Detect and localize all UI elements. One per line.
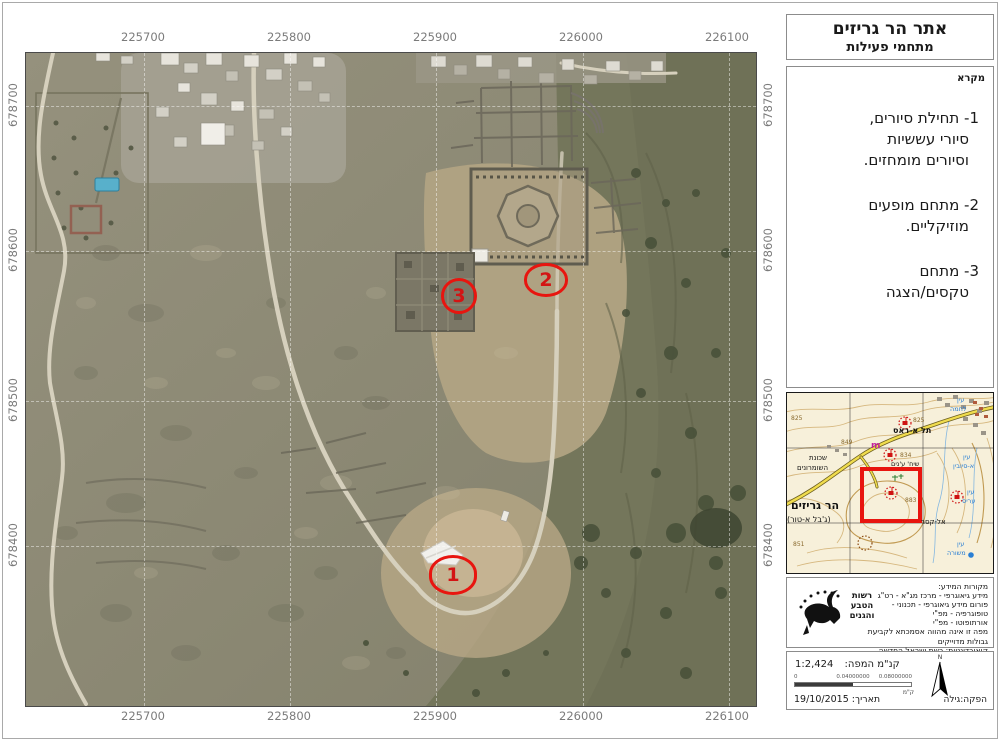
grid-line bbox=[26, 106, 756, 107]
marker-number: 2 bbox=[539, 271, 552, 290]
producer-text: הפקה:גילה bbox=[943, 695, 987, 705]
grid-line bbox=[26, 546, 756, 547]
inset-label-jabal-a-tur: (ג'בל א-טור) bbox=[787, 515, 831, 524]
legend-line: וסיורים מומחזים. bbox=[793, 150, 979, 171]
grid-line bbox=[26, 251, 756, 252]
grid-line bbox=[26, 401, 756, 402]
coord-label-left: 678500 bbox=[6, 360, 20, 440]
marker-number: 3 bbox=[452, 287, 465, 306]
inset-elevation: 825 bbox=[791, 415, 802, 422]
credit-line: טופוגרפיה - מפ"י bbox=[854, 609, 988, 618]
inset-elevation: 849 bbox=[841, 439, 852, 446]
grid-line bbox=[290, 53, 291, 706]
coord-label-left: 678400 bbox=[6, 505, 20, 585]
legend-line: מוזיקליים. bbox=[793, 216, 979, 237]
coord-label-bottom: 226000 bbox=[541, 709, 621, 723]
coord-label-top: 225700 bbox=[103, 30, 183, 44]
coord-label-right: 678700 bbox=[761, 65, 775, 145]
legend-line: 2- מתחם מופעים bbox=[793, 195, 979, 216]
aerial-orthophoto bbox=[26, 53, 756, 706]
scale-tick: 0.04000000 bbox=[836, 674, 869, 680]
page-title: אתר הר גריזים מתחמי פעילות bbox=[786, 14, 994, 60]
legend-line: 1- תחילת סיורים, bbox=[793, 108, 979, 129]
grid-line bbox=[729, 53, 730, 706]
legend-item-1: 1- תחילת סיורים, סיורי עששיות וסיורים מו… bbox=[787, 108, 993, 171]
scale-value: 1:2,424 bbox=[795, 659, 833, 670]
coord-label-right: 678600 bbox=[761, 210, 775, 290]
inset-elevation: 825 bbox=[913, 417, 924, 424]
credit-line: אורתופוטו - מפ"י bbox=[854, 618, 988, 627]
inset-label-tel-a-ras: תל א-ראס bbox=[893, 426, 931, 435]
credit-line: פורום מידע גיאוגרפי - תכנוני - bbox=[854, 600, 988, 609]
grid-line bbox=[436, 53, 437, 706]
scale-unit: ק"מ bbox=[903, 689, 914, 696]
map-sheet: 225700 225800 225900 226000 226100 22570… bbox=[0, 0, 1000, 741]
inset-label-neighborhood: השומרונים bbox=[797, 464, 828, 472]
inset-label-neighborhood: שכונת bbox=[809, 454, 827, 462]
coord-label-bottom: 225900 bbox=[395, 709, 475, 723]
coord-label-left: 678700 bbox=[6, 65, 20, 145]
coord-label-right: 678500 bbox=[761, 360, 775, 440]
credit-line: מקורות המידע: bbox=[854, 582, 988, 591]
marker-number: 1 bbox=[446, 566, 459, 585]
aerial-map: 1 2 3 bbox=[25, 52, 757, 707]
legend-line: 3- מתחם bbox=[793, 261, 979, 282]
coord-label-top: 225900 bbox=[395, 30, 475, 44]
inset-elevation: 851 bbox=[793, 541, 804, 548]
scale-bar-fill bbox=[795, 683, 853, 686]
coord-label-bottom: 226100 bbox=[687, 709, 767, 723]
legend-header: מקרא bbox=[787, 67, 993, 84]
inset-label-sheikh: שיח' ע'נים bbox=[891, 460, 919, 468]
scale-bar: 0 0.04000000 0.08000000 ק"מ bbox=[794, 674, 912, 696]
inset-label-har-gerizim: הר גריזים bbox=[791, 499, 839, 512]
coord-label-top: 226000 bbox=[541, 30, 621, 44]
coord-label-bottom: 225700 bbox=[103, 709, 183, 723]
credit-line: מפה זו אינה מהווה אסמכתא לקביעת גבולות מ… bbox=[854, 627, 988, 645]
scale-tick: 0 bbox=[794, 674, 798, 680]
scale-label: קנ"מ המפה: bbox=[845, 659, 900, 670]
inset-spring-label: א-סיובין bbox=[953, 462, 974, 470]
site-marker-1: 1 bbox=[429, 555, 477, 595]
site-marker-2: 2 bbox=[524, 263, 568, 297]
inpa-ibex-logo-icon bbox=[793, 585, 847, 641]
inset-spring-label: עין bbox=[957, 396, 964, 404]
map-scale: קנ"מ המפה: 1:2,424 bbox=[795, 659, 900, 670]
credits: רשות הטבע והגנים מקורות המידע: מידע גיאו… bbox=[786, 577, 994, 648]
scale-tick: 0.08000000 bbox=[879, 674, 912, 680]
north-arrow: N bbox=[929, 655, 951, 699]
inset-spring-label: עריס bbox=[962, 497, 975, 505]
map-title: אתר הר גריזים bbox=[787, 19, 993, 39]
legend-line: טקסים/הצגה bbox=[793, 282, 979, 303]
credit-line: מידע גיאוגרפי - מרכז מג"א - רט"ג bbox=[854, 591, 988, 600]
coord-label-right: 678400 bbox=[761, 505, 775, 585]
inset-label-el-qasr: אל-קסר bbox=[921, 518, 946, 526]
inset-m-symbol: m bbox=[871, 441, 880, 451]
inset-elevation: 834 bbox=[900, 452, 911, 459]
north-arrow-icon bbox=[929, 661, 951, 699]
legend: מקרא 1- תחילת סיורים, סיורי עששיות וסיור… bbox=[786, 66, 994, 388]
inset-spring-label: לחמה bbox=[950, 405, 967, 413]
grid-line bbox=[583, 53, 584, 706]
grid-line bbox=[144, 53, 145, 706]
scale-box: קנ"מ המפה: 1:2,424 0 0.04000000 0.080000… bbox=[786, 651, 994, 710]
legend-item-3: 3- מתחם טקסים/הצגה bbox=[787, 261, 993, 303]
locator-inset-map: 825 825 תל א-ראס 849 m 834 שיח' ע'נים שכ… bbox=[786, 392, 994, 574]
inset-spring-label: עין bbox=[967, 488, 974, 496]
inset-spring-label: עין bbox=[957, 540, 964, 548]
legend-item-2: 2- מתחם מופעים מוזיקליים. bbox=[787, 195, 993, 237]
inset-elevation: 883 bbox=[905, 497, 916, 504]
scale-bar-track bbox=[794, 682, 912, 687]
coord-label-left: 678600 bbox=[6, 210, 20, 290]
inset-spring-label: עין bbox=[963, 453, 970, 461]
coord-label-top: 225800 bbox=[249, 30, 329, 44]
map-subtitle: מתחמי פעילות bbox=[787, 40, 993, 55]
credit-lines: מקורות המידע: מידע גיאוגרפי - מרכז מג"א … bbox=[854, 582, 988, 655]
inset-spring-label: משורה bbox=[947, 549, 966, 557]
coord-label-bottom: 225800 bbox=[249, 709, 329, 723]
date-text: תאריך: 19/10/2015 bbox=[794, 694, 880, 705]
coord-label-top: 226100 bbox=[687, 30, 767, 44]
legend-line: סיורי עששיות bbox=[793, 129, 979, 150]
site-marker-3: 3 bbox=[441, 278, 477, 314]
